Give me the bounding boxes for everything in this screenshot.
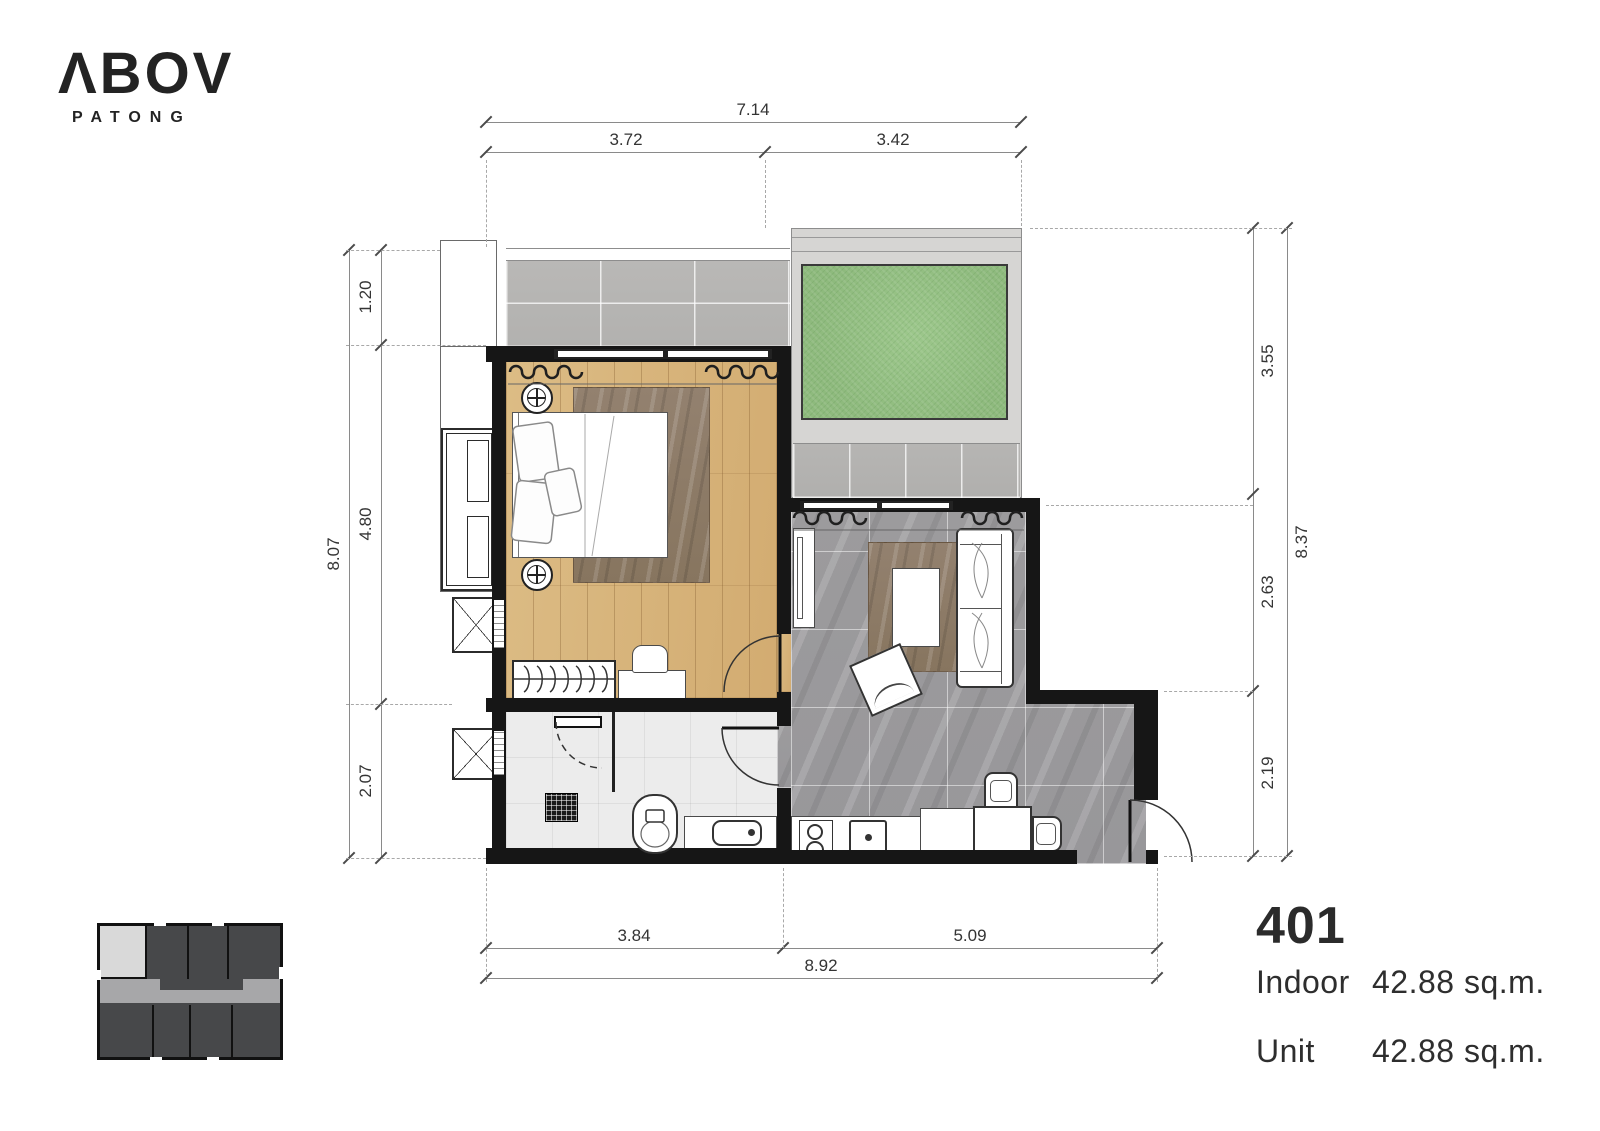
keyplan-corridor [100, 979, 160, 1003]
dim-extension [486, 160, 487, 247]
dim-line-top-overall [486, 122, 1021, 123]
dim-label: 3.55 [1258, 344, 1278, 377]
dim-line-left-overall [349, 250, 350, 858]
dim-label: 8.92 [804, 956, 837, 976]
keyplan-notch [94, 970, 101, 980]
keyplan-divider [227, 926, 229, 979]
dim-extension [1046, 505, 1253, 506]
dim-extension [346, 858, 486, 859]
dim-extension [1030, 228, 1292, 229]
bathroom-door [722, 728, 779, 785]
unit-info-row: Indoor 42.88 sq.m. [1256, 964, 1586, 1001]
dim-label: 7.14 [736, 100, 769, 120]
dim-extension [1164, 856, 1292, 857]
dim-label: 2.07 [356, 764, 376, 797]
dim-line-bottom-segments [486, 948, 1157, 949]
dim-extension [346, 704, 452, 705]
dim-extension [346, 345, 486, 346]
keyplan-corridor [243, 979, 280, 1003]
dim-label: 4.80 [356, 507, 376, 540]
keyplan-notch [150, 1057, 162, 1064]
unit-area-value: 42.88 sq.m. [1372, 1033, 1545, 1070]
dim-label: 3.42 [876, 130, 909, 150]
hanger-icons [512, 666, 616, 692]
indoor-value: 42.88 sq.m. [1372, 964, 1545, 1001]
dim-extension [1157, 868, 1158, 982]
duvet-fold-lines [585, 414, 614, 557]
dim-label: 3.84 [617, 926, 650, 946]
sofa-leaf-pattern [972, 543, 988, 668]
dim-extension [1164, 691, 1253, 692]
keyplan-notch [154, 919, 166, 926]
dim-label: 3.72 [609, 130, 642, 150]
dim-label: 2.19 [1258, 756, 1278, 789]
floorplan-page: ΛBOV PATONG [0, 0, 1600, 1131]
dim-label: 2.63 [1258, 575, 1278, 608]
keyplan-divider [187, 926, 189, 979]
dim-label: 1.20 [356, 280, 376, 313]
unit-number: 401 [1256, 896, 1586, 956]
building-keyplan-icon [92, 897, 292, 1067]
dim-label: 5.09 [953, 926, 986, 946]
toilet-icon [633, 795, 677, 853]
keyplan-divider [231, 1005, 233, 1060]
keyplan-notch [207, 1057, 219, 1064]
curtain-icon [510, 366, 1022, 524]
dim-line-right-overall [1287, 228, 1288, 856]
unit-info: 401 Indoor 42.88 sq.m. Unit 42.88 sq.m. [1256, 896, 1586, 1070]
dim-line-top-segments [486, 152, 1021, 153]
entry-door [1130, 800, 1192, 862]
dim-extension [486, 868, 487, 982]
unit-area-label: Unit [1256, 1033, 1315, 1069]
keyplan-divider [152, 1005, 154, 1060]
keyplan-divider [189, 1005, 191, 1060]
keyplan-highlight-unit [100, 926, 147, 979]
dim-extension [765, 160, 766, 228]
dim-label: 8.07 [324, 537, 344, 570]
dim-line-bottom-overall [486, 978, 1157, 979]
bedroom-door [724, 634, 780, 692]
unit-info-row: Unit 42.88 sq.m. [1256, 1033, 1586, 1070]
dim-extension [783, 868, 784, 948]
dim-line-right-segments [1253, 228, 1254, 856]
bed-pillows [511, 421, 582, 543]
dim-label: 8.37 [1292, 525, 1312, 558]
dim-extension [1021, 160, 1022, 226]
keyplan-notch [279, 967, 286, 979]
shower-door [556, 722, 602, 768]
keyplan-notch [212, 919, 224, 926]
dim-extension [346, 250, 440, 251]
indoor-label: Indoor [1256, 964, 1350, 1000]
